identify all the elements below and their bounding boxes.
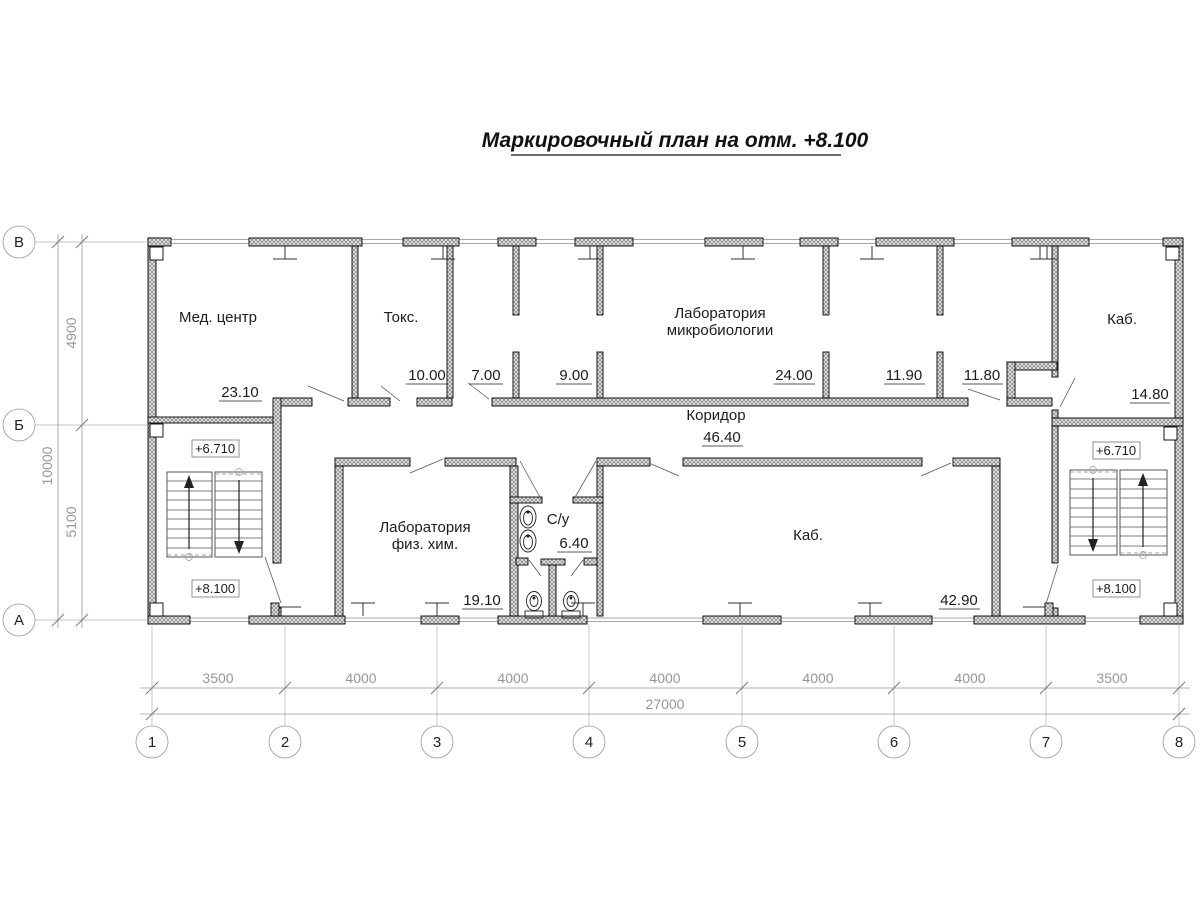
dim-value: 4000 <box>345 670 376 686</box>
room-name: Мед. центр <box>179 309 257 326</box>
room-name: Каб. <box>1107 311 1137 328</box>
walls <box>148 238 1183 624</box>
room-area: 10.00 <box>408 367 446 384</box>
washbasin-icon <box>520 506 536 528</box>
room-area: 42.90 <box>940 592 978 609</box>
room-name: С/у <box>547 511 570 528</box>
room-area: 23.10 <box>221 384 259 401</box>
dim-total: 27000 <box>646 696 685 712</box>
toilet-icon <box>525 592 543 619</box>
axis-bubbles-bottom: 1 2 3 4 5 6 7 8 <box>136 726 1195 758</box>
floor-plan-drawing: Маркировочный план на отм. +8.100 <box>0 0 1200 900</box>
door-leader-lines <box>265 378 1075 604</box>
elevation-mark: +6.710 <box>195 441 235 456</box>
room-name: физ. хим. <box>392 536 458 553</box>
room-area: 7.00 <box>471 367 500 384</box>
room-area: 6.40 <box>559 535 588 552</box>
room-area: 14.80 <box>1131 386 1169 403</box>
axis-number: 4 <box>585 734 593 751</box>
washbasin-icon <box>520 530 536 552</box>
axis-letter: В <box>14 234 24 251</box>
dim-value: 3500 <box>1096 670 1127 686</box>
room-area: 11.80 <box>964 367 1000 384</box>
room-name: Каб. <box>793 527 823 544</box>
room-name: Лаборатория <box>674 305 765 322</box>
axis-number: 2 <box>281 734 289 751</box>
room-name: Токс. <box>384 309 419 326</box>
dim-value: 3500 <box>202 670 233 686</box>
drawing-title: Маркировочный план на отм. +8.100 <box>482 129 869 155</box>
floor-plan-sheet: Маркировочный план на отм. +8.100 <box>0 0 1200 900</box>
axis-number: 1 <box>148 734 156 751</box>
page-title: Маркировочный план на отм. +8.100 <box>482 129 869 152</box>
axis-number: 3 <box>433 734 441 751</box>
dim-value: 4900 <box>63 317 79 348</box>
room-area: 19.10 <box>463 592 501 609</box>
axis-letter: Б <box>14 417 24 434</box>
elevation-mark: +8.100 <box>1096 581 1136 596</box>
bottom-dimensions: 3500 4000 4000 4000 4000 4000 3500 27000 <box>140 670 1190 720</box>
dim-total: 10000 <box>39 446 55 485</box>
column-markers <box>150 247 1179 616</box>
room-area: 11.90 <box>886 367 922 384</box>
dim-value: 5100 <box>63 506 79 537</box>
dim-value: 4000 <box>954 670 985 686</box>
room-name: Лаборатория <box>379 519 470 536</box>
elevation-mark: +6.710 <box>1096 443 1136 458</box>
dim-value: 4000 <box>497 670 528 686</box>
left-dimensions: 4900 5100 10000 <box>39 234 88 628</box>
axis-bubbles-left: В Б А <box>3 226 35 636</box>
axis-number: 6 <box>890 734 898 751</box>
stair-right <box>1070 467 1167 559</box>
axis-number: 7 <box>1042 734 1050 751</box>
toilet-icon <box>562 592 580 619</box>
dim-value: 4000 <box>802 670 833 686</box>
axis-number: 5 <box>738 734 746 751</box>
axis-number: 8 <box>1175 734 1183 751</box>
elevation-mark: +8.100 <box>195 581 235 596</box>
room-name: микробиологии <box>667 322 773 339</box>
room-area: 46.40 <box>703 429 741 446</box>
room-labels: Мед. центр 23.10 Токс. 10.00 7.00 9.00 Л… <box>179 305 1170 609</box>
dim-value: 4000 <box>649 670 680 686</box>
window-glazing-lines <box>148 240 1183 622</box>
room-name: Коридор <box>686 407 745 424</box>
stair-left <box>167 469 262 561</box>
room-area: 9.00 <box>559 367 588 384</box>
room-area: 24.00 <box>775 367 813 384</box>
axis-letter: А <box>14 612 24 629</box>
